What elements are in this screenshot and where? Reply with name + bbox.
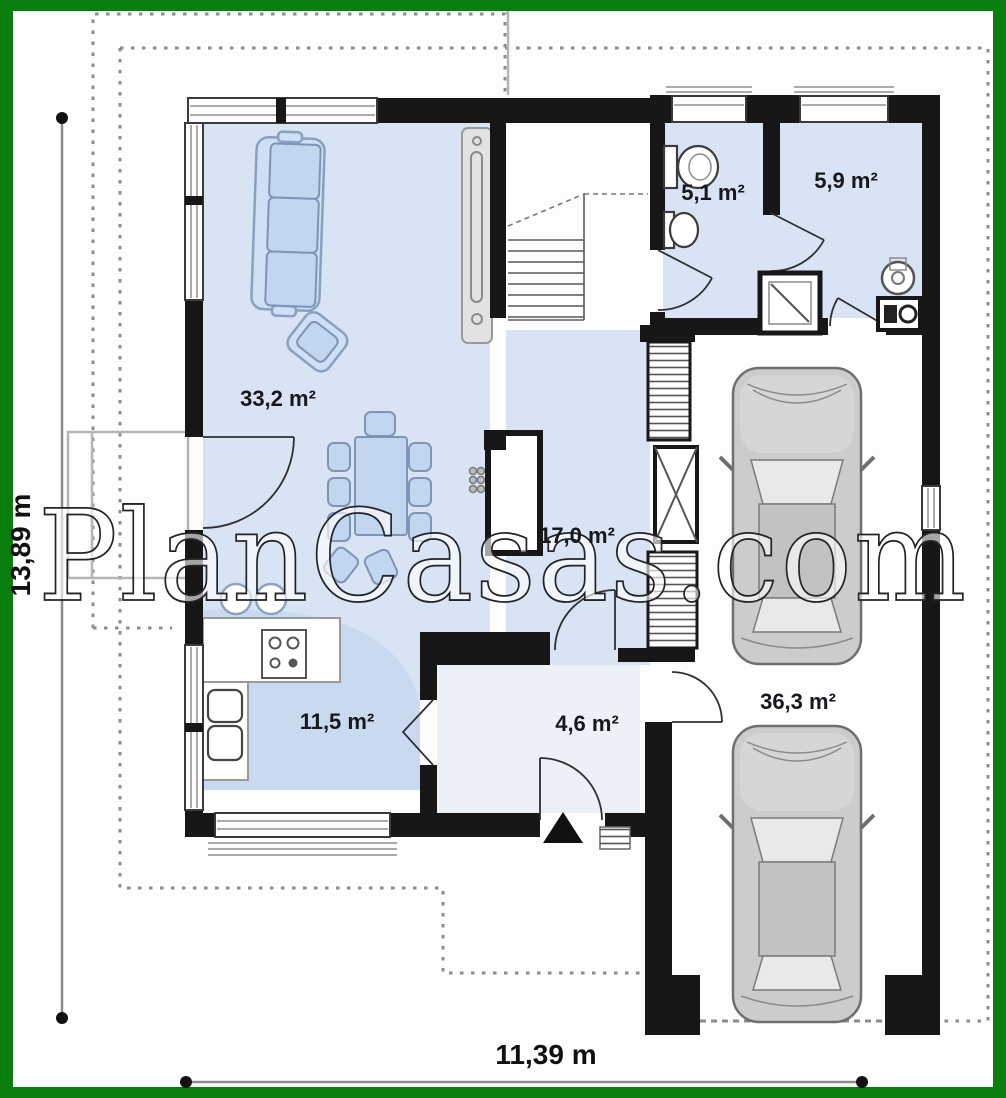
- entrance-step: [600, 827, 630, 849]
- window-wc: [666, 87, 752, 122]
- room-label-bath: 5,9 m²: [814, 168, 878, 193]
- dimension-height-label: 13,89 m: [5, 494, 36, 597]
- watermark-text: PlanCasas.com: [38, 483, 968, 630]
- floor-plan-image: PlanCasas.com 33,2 m² 5,1 m² 5,9 m² 17,0…: [0, 0, 1006, 1098]
- room-label-kitchen: 11,5 m²: [300, 709, 375, 734]
- corner-window-left: [185, 123, 203, 300]
- shower-icon: [760, 273, 820, 333]
- corner-window-top: [188, 98, 377, 123]
- dimension-width-label: 11,39 m: [495, 1039, 596, 1070]
- window-bath: [794, 87, 894, 122]
- room-label-wc: 5,1 m²: [681, 180, 745, 205]
- sofa: [251, 131, 325, 317]
- floor-plan-svg: PlanCasas.com 33,2 m² 5,1 m² 5,9 m² 17,0…: [0, 0, 1006, 1098]
- washbasin-icon: [664, 212, 698, 248]
- entry-floor: [437, 665, 640, 813]
- radiator-cabinet: [462, 128, 492, 343]
- room-label-hall: 17,0 m²: [539, 523, 615, 548]
- washer-icon: [878, 298, 920, 330]
- stove-icon: [262, 630, 306, 678]
- car-2: [720, 726, 874, 1022]
- window-left-lower: [185, 645, 203, 810]
- room-label-living: 33,2 m²: [240, 386, 316, 411]
- room-label-entry: 4,6 m²: [555, 711, 619, 736]
- window-bottom: [208, 813, 397, 855]
- room-label-garage: 36,3 m²: [760, 689, 836, 714]
